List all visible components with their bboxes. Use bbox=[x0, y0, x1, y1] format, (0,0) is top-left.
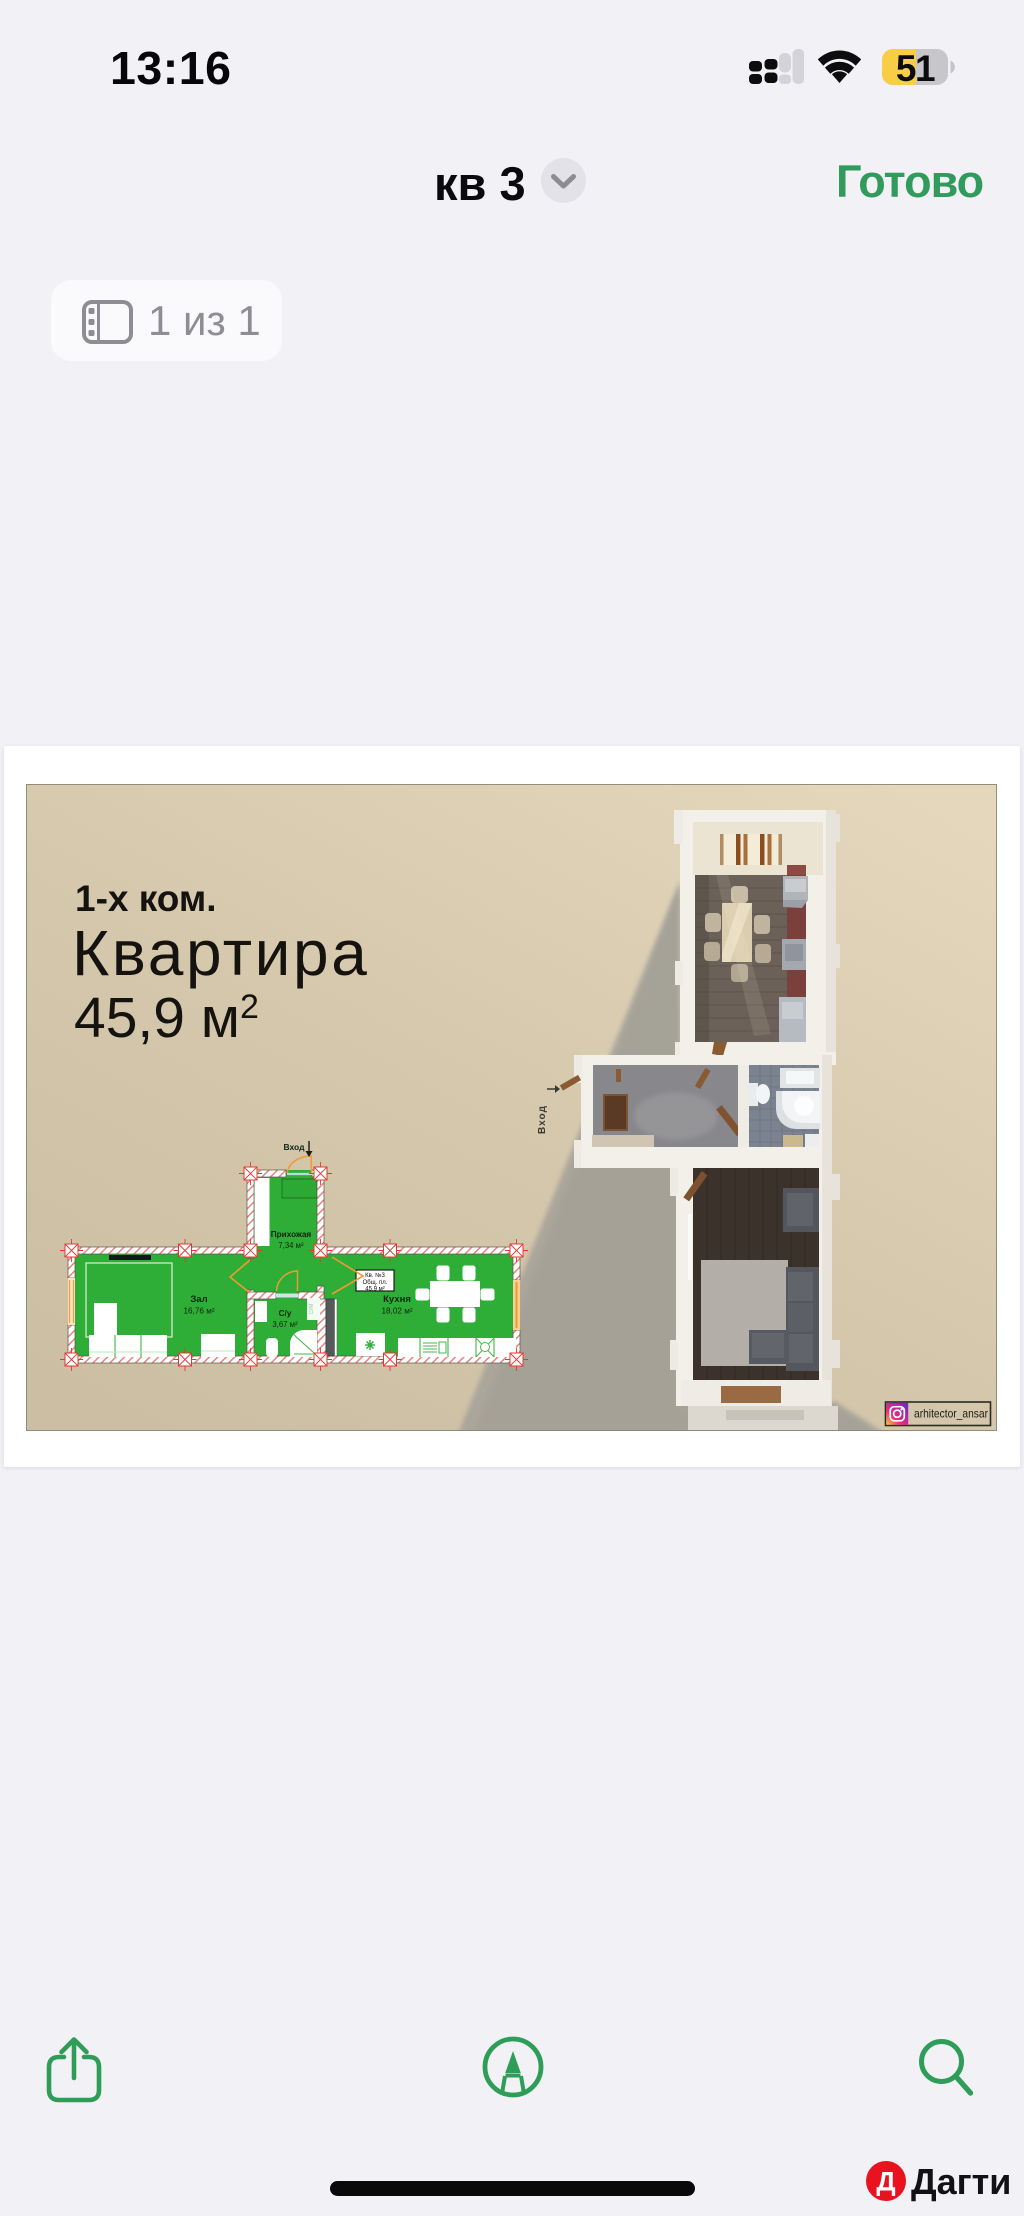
svg-text:Общ. пл.: Общ. пл. bbox=[363, 1280, 388, 1286]
svg-text:Д: Д bbox=[876, 2167, 895, 2197]
svg-text:18,02 м²: 18,02 м² bbox=[381, 1307, 412, 1316]
svg-text:Кв. №3: Кв. №3 bbox=[365, 1272, 385, 1279]
svg-text:3,67 м²: 3,67 м² bbox=[272, 1320, 298, 1329]
svg-text:arhitector_ansar: arhitector_ansar bbox=[914, 1407, 988, 1421]
svg-text:Прихожая: Прихожая bbox=[271, 1230, 312, 1239]
svg-text:Кухня: Кухня bbox=[383, 1294, 411, 1305]
svg-text:СУМ: СУМ bbox=[309, 1304, 315, 1315]
svg-text:51: 51 bbox=[896, 48, 935, 88]
svg-text:1-х ком.: 1-х ком. bbox=[75, 878, 217, 919]
svg-text:Вход: Вход bbox=[537, 1105, 548, 1134]
svg-text:С/у: С/у bbox=[279, 1309, 292, 1318]
svg-text:Квартира: Квартира bbox=[72, 917, 369, 989]
svg-text:Вход: Вход bbox=[283, 1142, 305, 1152]
svg-text:45,9 м²: 45,9 м² bbox=[365, 1286, 384, 1292]
svg-text:7,34 м²: 7,34 м² bbox=[278, 1241, 304, 1250]
svg-text:45,9 м2: 45,9 м2 bbox=[74, 986, 259, 1050]
svg-text:16,76 м²: 16,76 м² bbox=[183, 1307, 214, 1316]
svg-text:Зал: Зал bbox=[190, 1294, 207, 1305]
